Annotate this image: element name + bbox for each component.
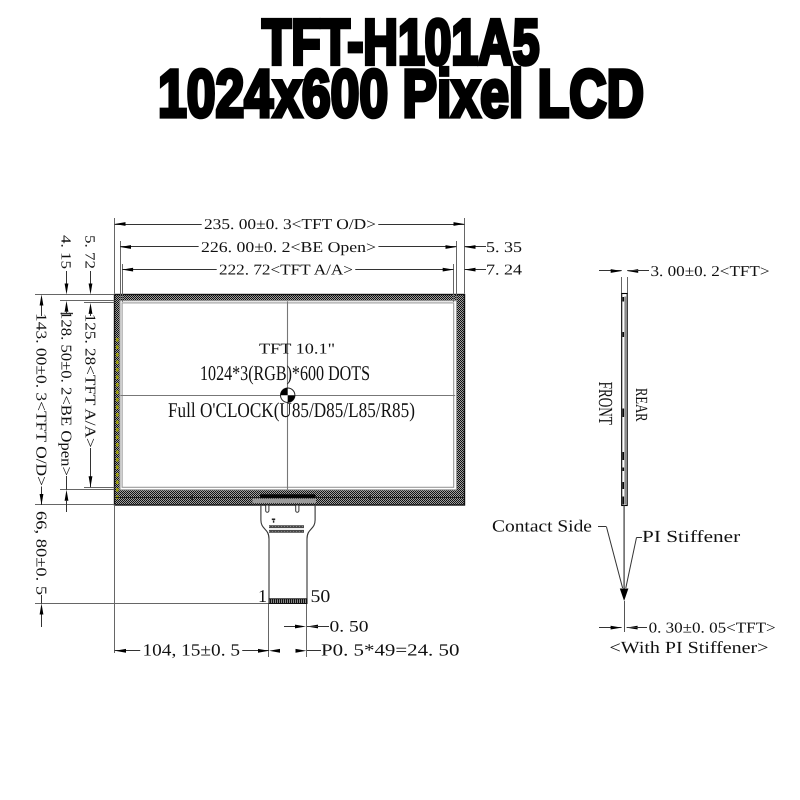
svg-text:1024x600 Pixel LCD: 1024x600 Pixel LCD	[158, 57, 644, 132]
svg-text:0. 30±0. 05<TFT>: 0. 30±0. 05<TFT>	[649, 620, 776, 636]
svg-text:P0. 5*49=24. 50: P0. 5*49=24. 50	[321, 641, 459, 660]
svg-text:Contact Side: Contact Side	[492, 517, 592, 536]
svg-text:104, 15±0. 5: 104, 15±0. 5	[143, 641, 241, 660]
svg-text:PI Stiffener: PI Stiffener	[642, 527, 741, 546]
svg-text:66, 80±0. 5: 66, 80±0. 5	[32, 511, 48, 595]
svg-text:1: 1	[258, 586, 267, 606]
svg-text:Full O'CLOCK(U85/D85/L85/R85): Full O'CLOCK(U85/D85/L85/R85)	[168, 398, 415, 422]
svg-text:1024*3(RGB)*600 DOTS: 1024*3(RGB)*600 DOTS	[200, 361, 370, 385]
svg-text:222. 72<TFT A/A>: 222. 72<TFT A/A>	[219, 262, 353, 278]
svg-text:5. 72: 5. 72	[81, 235, 96, 269]
svg-text:0. 50: 0. 50	[330, 618, 369, 635]
svg-text:143. 00±0. 3<TFT O/D>: 143. 00±0. 3<TFT O/D>	[32, 313, 48, 486]
svg-text:128. 50±0. 2<BE Open>: 128. 50±0. 2<BE Open>	[57, 311, 73, 476]
svg-text:3. 00±0. 2<TFT>: 3. 00±0. 2<TFT>	[651, 264, 770, 280]
svg-text:235. 00±0. 3<TFT O/D>: 235. 00±0. 3<TFT O/D>	[204, 217, 376, 233]
svg-text:REAR: REAR	[632, 388, 651, 422]
svg-text:TFT 10.1": TFT 10.1"	[259, 342, 335, 358]
svg-text:<With PI Stiffener>: <With PI Stiffener>	[610, 638, 769, 657]
svg-text:5. 35: 5. 35	[486, 240, 522, 256]
svg-text:125. 28<TFT A/A>: 125. 28<TFT A/A>	[81, 314, 97, 448]
svg-text:FRONT: FRONT	[594, 382, 616, 425]
svg-text:226. 00±0. 2<BE Open>: 226. 00±0. 2<BE Open>	[201, 240, 376, 256]
svg-text:7. 24: 7. 24	[486, 262, 523, 278]
svg-text:4. 15: 4. 15	[57, 235, 72, 269]
svg-text:50: 50	[311, 586, 331, 606]
